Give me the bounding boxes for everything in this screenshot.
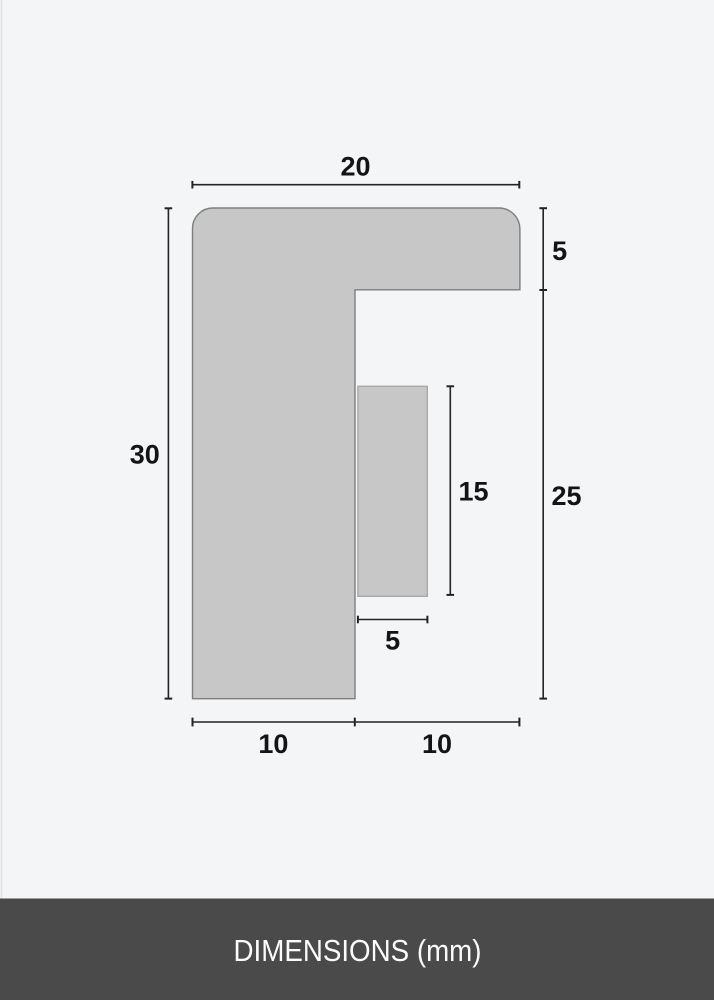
svg-text:5: 5	[385, 626, 400, 656]
svg-text:5: 5	[552, 236, 567, 266]
svg-text:15: 15	[458, 476, 488, 506]
svg-text:25: 25	[551, 481, 581, 511]
svg-text:30: 30	[130, 440, 160, 470]
svg-text:20: 20	[340, 152, 370, 182]
svg-text:10: 10	[422, 729, 452, 759]
svg-text:10: 10	[258, 729, 288, 759]
svg-text:DIMENSIONS (mm): DIMENSIONS (mm)	[234, 933, 482, 968]
